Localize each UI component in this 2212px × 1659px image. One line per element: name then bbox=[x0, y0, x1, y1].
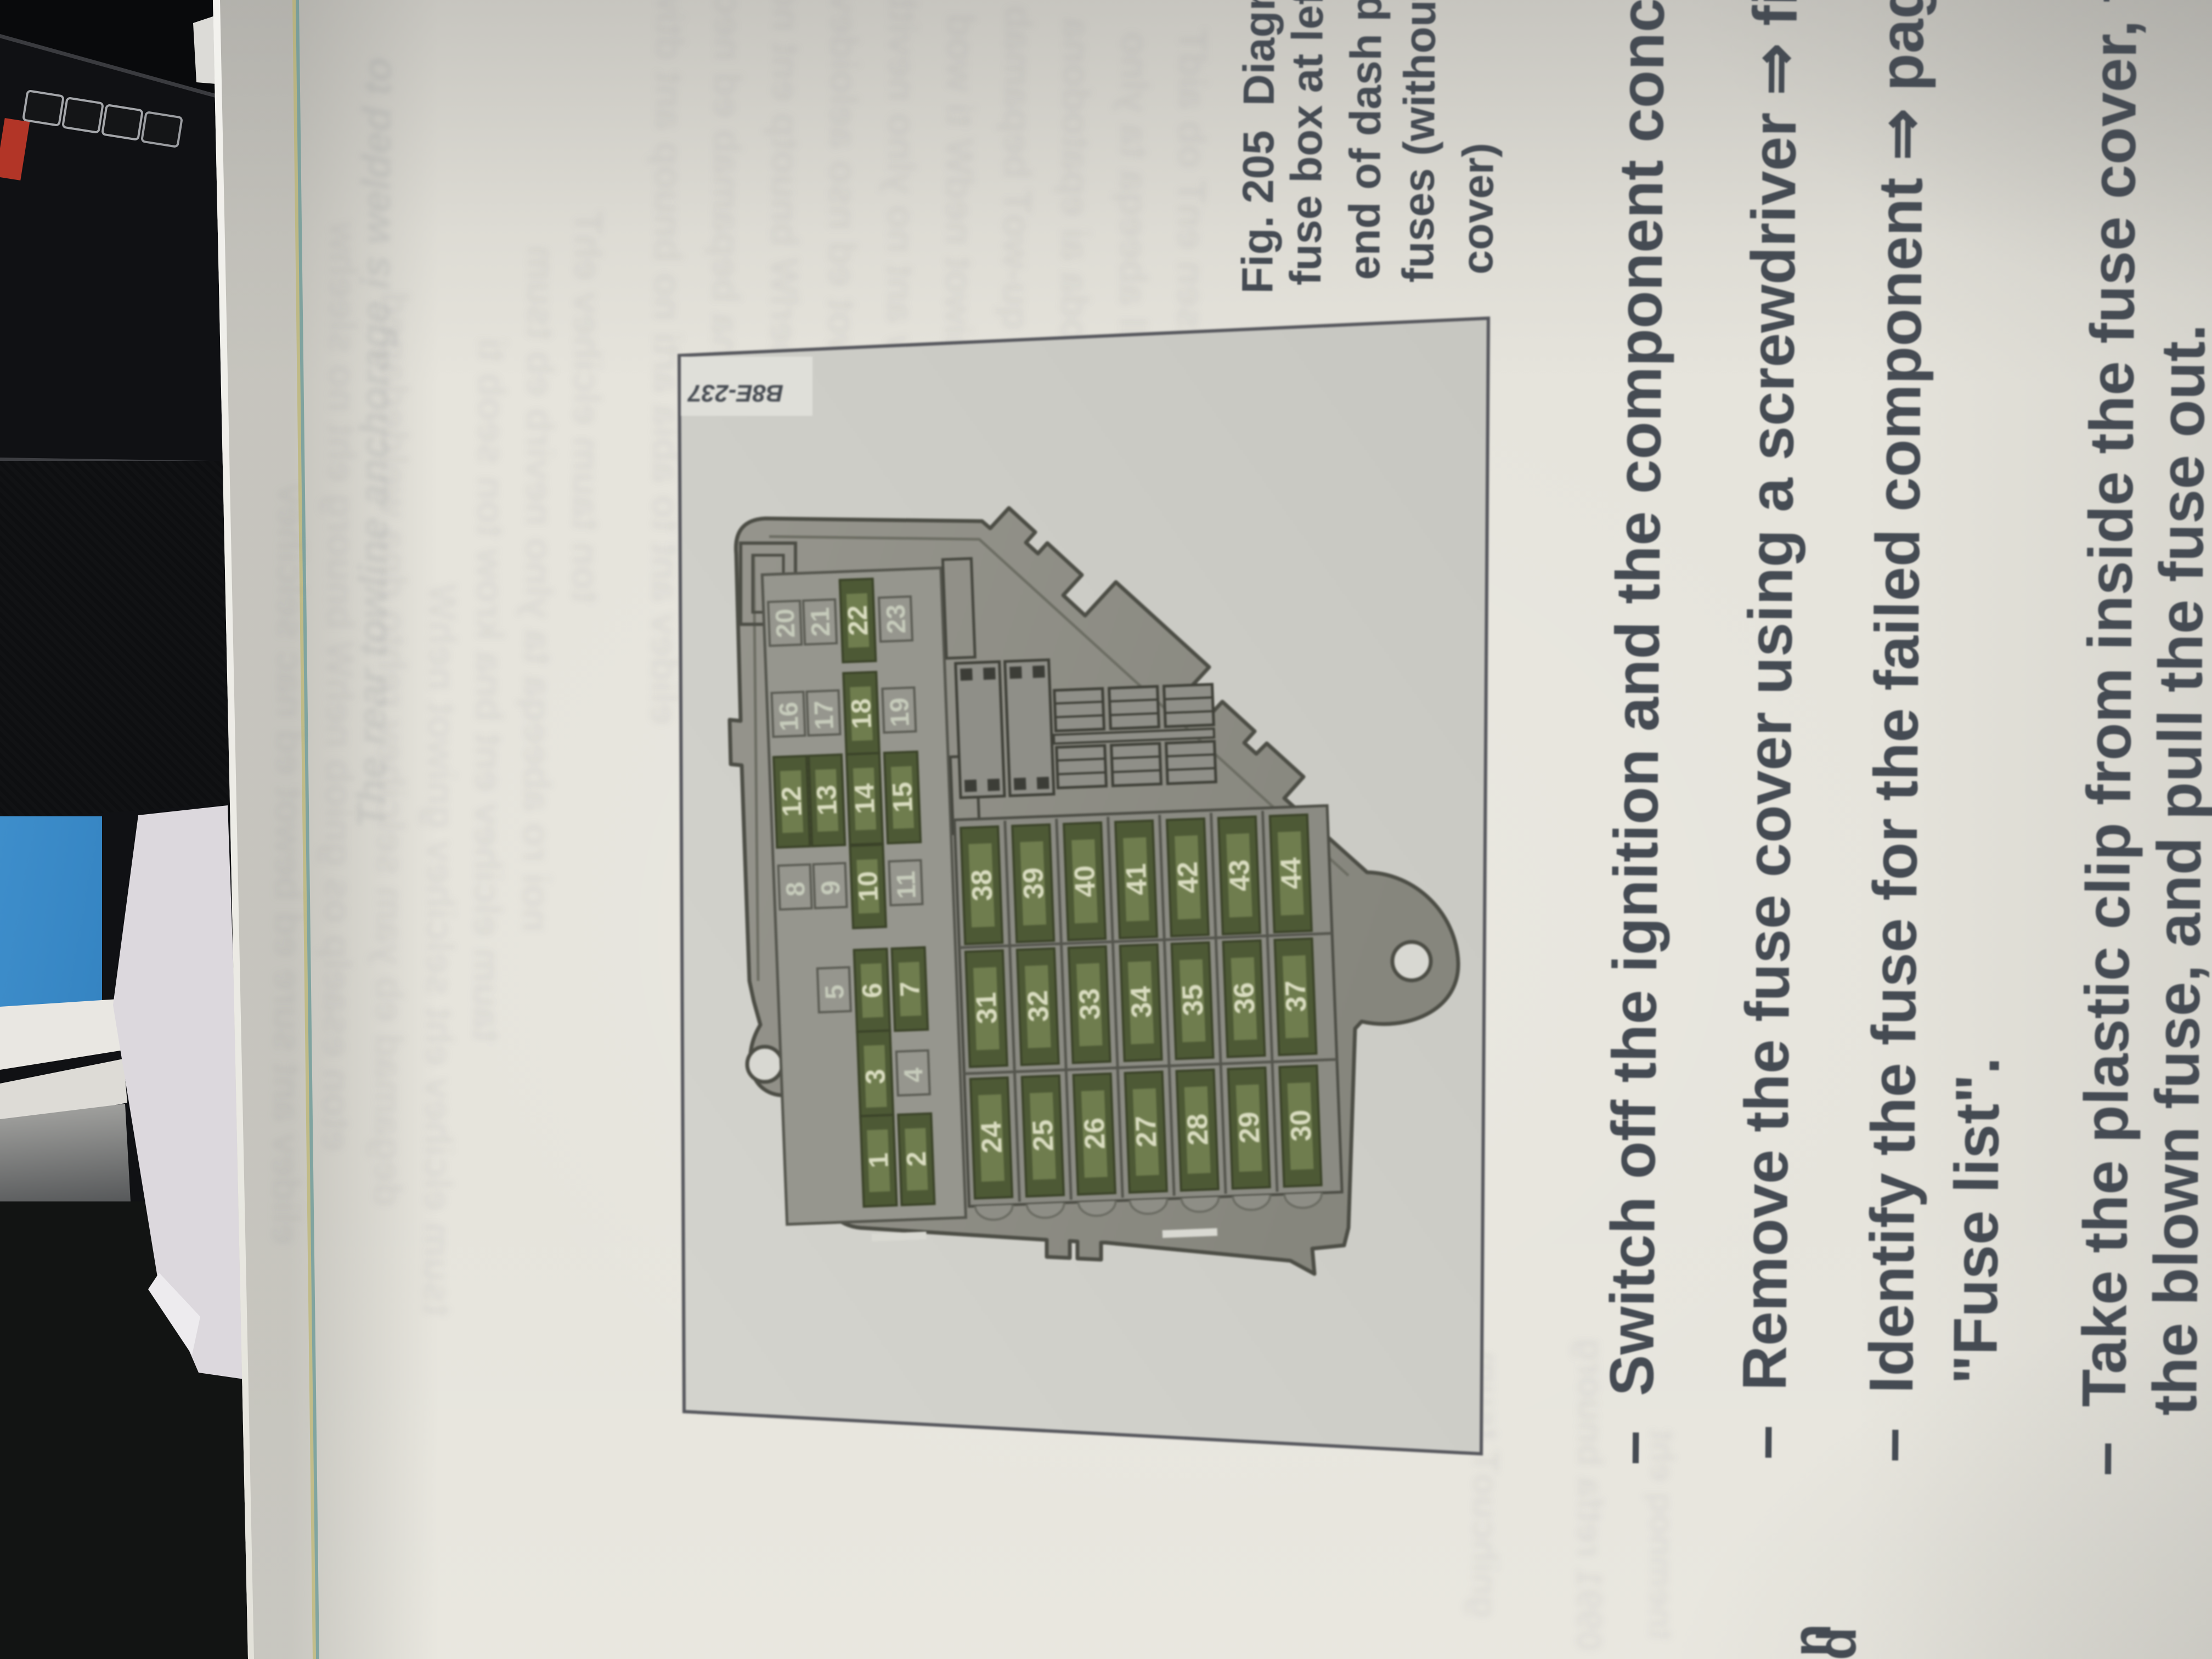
svg-text:9: 9 bbox=[816, 880, 846, 896]
svg-text:18: 18 bbox=[845, 698, 877, 730]
svg-text:B8E-237: B8E-237 bbox=[687, 380, 783, 407]
svg-text:4: 4 bbox=[899, 1067, 929, 1083]
svg-text:22: 22 bbox=[842, 605, 873, 636]
svg-text:43: 43 bbox=[1223, 859, 1256, 892]
svg-text:34: 34 bbox=[1125, 986, 1158, 1019]
svg-text:23: 23 bbox=[881, 604, 911, 634]
svg-text:39: 39 bbox=[1017, 867, 1050, 900]
svg-text:30: 30 bbox=[1284, 1109, 1317, 1142]
svg-text:15: 15 bbox=[887, 781, 918, 813]
svg-text:31: 31 bbox=[970, 991, 1003, 1024]
svg-text:21: 21 bbox=[806, 607, 836, 637]
svg-text:40: 40 bbox=[1069, 865, 1102, 898]
svg-text:20: 20 bbox=[771, 608, 801, 638]
svg-text:17: 17 bbox=[809, 700, 839, 730]
svg-text:27: 27 bbox=[1130, 1115, 1163, 1148]
svg-text:13: 13 bbox=[811, 785, 843, 816]
svg-text:1: 1 bbox=[863, 1152, 894, 1169]
svg-text:41: 41 bbox=[1120, 863, 1153, 896]
svg-text:7: 7 bbox=[894, 981, 926, 997]
svg-text:6: 6 bbox=[856, 983, 888, 999]
svg-text:10: 10 bbox=[852, 871, 884, 902]
svg-text:5: 5 bbox=[820, 984, 850, 1000]
svg-text:42: 42 bbox=[1172, 861, 1205, 894]
svg-text:32: 32 bbox=[1022, 990, 1055, 1023]
svg-text:3: 3 bbox=[860, 1068, 891, 1085]
svg-text:29: 29 bbox=[1233, 1111, 1266, 1144]
svg-text:19: 19 bbox=[885, 697, 915, 727]
svg-text:37: 37 bbox=[1279, 980, 1312, 1013]
svg-text:2: 2 bbox=[901, 1151, 932, 1167]
svg-text:16: 16 bbox=[774, 701, 804, 731]
svg-text:14: 14 bbox=[849, 783, 881, 815]
svg-text:28: 28 bbox=[1182, 1113, 1215, 1146]
svg-text:24: 24 bbox=[975, 1121, 1008, 1154]
svg-text:36: 36 bbox=[1228, 981, 1261, 1014]
svg-text:26: 26 bbox=[1079, 1117, 1111, 1150]
svg-text:12: 12 bbox=[776, 786, 808, 817]
svg-text:33: 33 bbox=[1074, 988, 1107, 1020]
svg-text:11: 11 bbox=[891, 871, 922, 900]
svg-text:8: 8 bbox=[781, 881, 811, 897]
svg-text:44: 44 bbox=[1275, 857, 1308, 890]
svg-text:25: 25 bbox=[1027, 1119, 1060, 1152]
svg-text:38: 38 bbox=[966, 869, 998, 902]
svg-text:35: 35 bbox=[1176, 984, 1209, 1017]
